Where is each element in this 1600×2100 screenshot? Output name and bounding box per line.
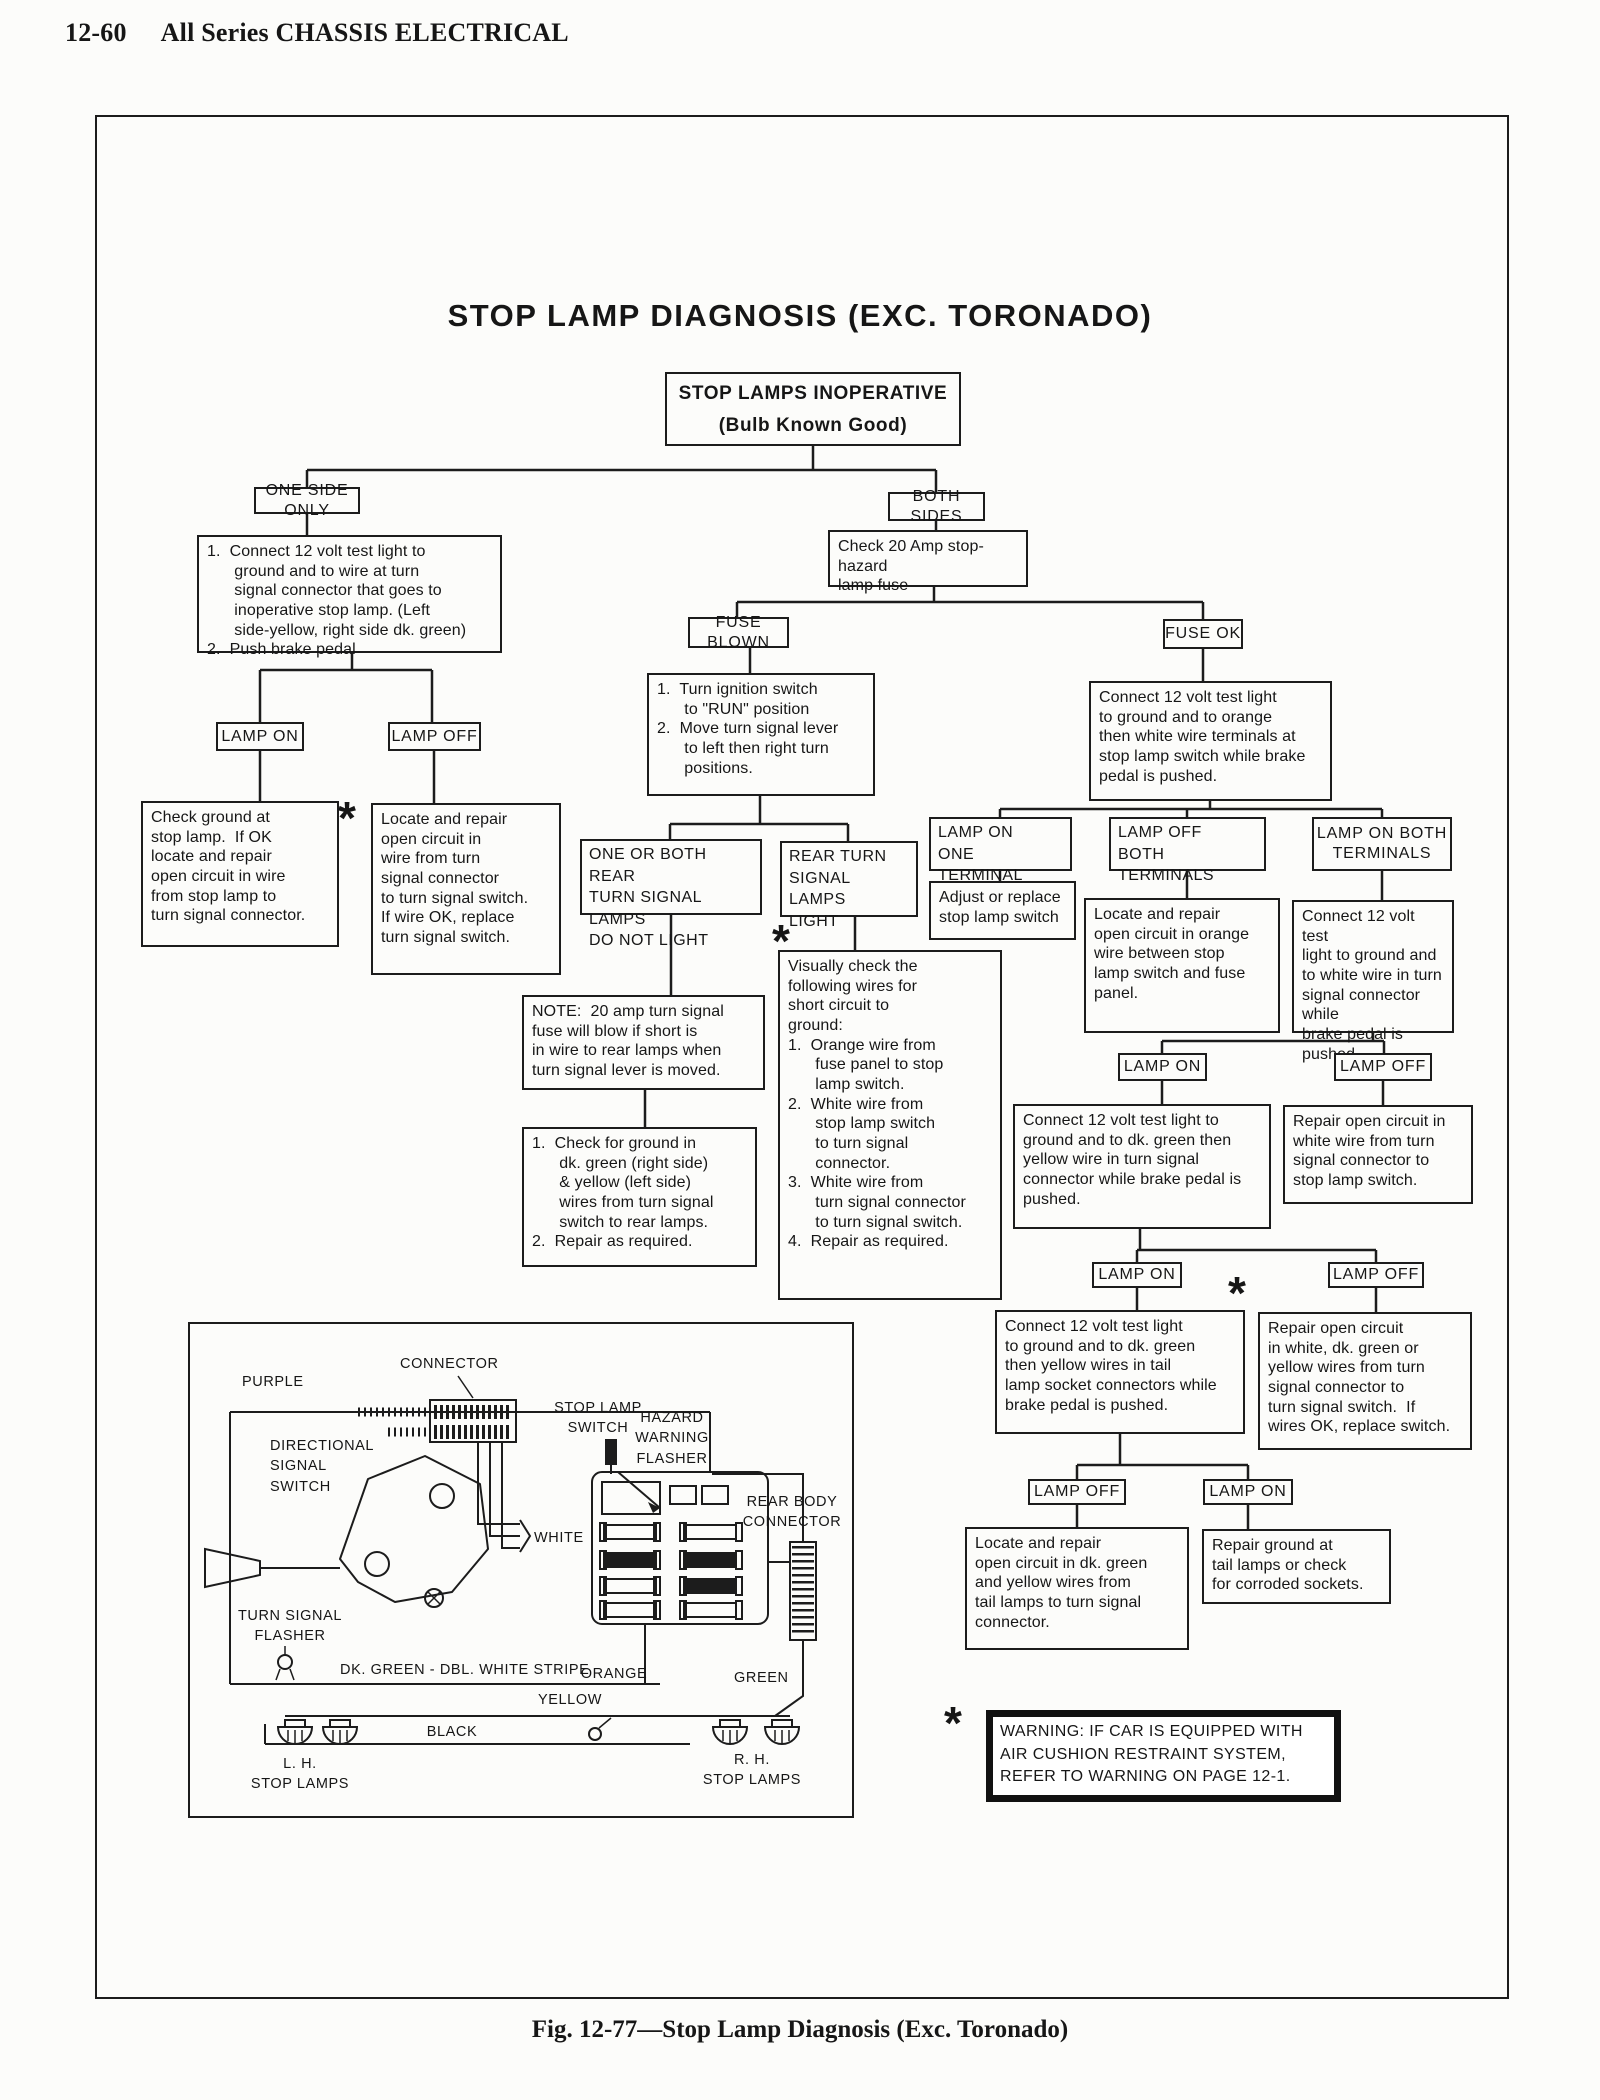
label-stop-lamp-switch: STOP LAMP SWITCH — [554, 1398, 642, 1439]
figure-caption: Fig. 12-77—Stop Lamp Diagnosis (Exc. Tor… — [0, 2016, 1600, 2044]
footnote-asterisk-warning: * — [944, 1700, 962, 1746]
node-visually-check: Visually check the following wires for s… — [778, 950, 1002, 1300]
node-one-side-steps: 1. Connect 12 volt test light to ground … — [197, 535, 502, 653]
node-lamp-on-r1: LAMP ON — [1118, 1053, 1207, 1081]
footnote-asterisk-3: * — [1228, 1270, 1246, 1316]
footnote-asterisk-2: * — [772, 918, 790, 964]
label-rear-body-connector: REAR BODY CONNECTOR — [743, 1492, 842, 1533]
label-connector: CONNECTOR — [400, 1354, 499, 1374]
node-one-or-both-rear: ONE OR BOTH REAR TURN SIGNAL LAMPS DO NO… — [580, 839, 762, 915]
node-lamp-off-bottom: LAMP OFF — [1028, 1479, 1126, 1505]
label-white: WHITE — [534, 1528, 584, 1548]
section-title: All Series CHASSIS ELECTRICAL — [161, 18, 569, 47]
node-lamp-off-r1: LAMP OFF — [1334, 1053, 1432, 1081]
page-number: 12-60 — [65, 18, 127, 47]
node-connect-white-turn: Connect 12 volt test light to ground and… — [1292, 900, 1454, 1033]
node-adjust-replace: Adjust or replace stop lamp switch — [929, 881, 1076, 940]
node-repair-white: Repair open circuit in white wire from t… — [1283, 1105, 1473, 1204]
flowchart-title: STOP LAMP DIAGNOSIS (EXC. TORONADO) — [95, 298, 1505, 334]
label-yellow: YELLOW — [538, 1690, 602, 1710]
node-connect-orange-white: Connect 12 volt test light to ground and… — [1089, 681, 1332, 801]
node-fuse-blown: FUSE BLOWN — [688, 617, 789, 648]
label-turn-signal-flasher: TURN SIGNAL FLASHER — [238, 1606, 342, 1647]
node-locate-tail: Locate and repair open circuit in dk. gr… — [965, 1527, 1189, 1650]
node-lamp-on-one-terminal: LAMP ON ONE TERMINAL — [929, 817, 1072, 871]
label-dk-green-stripe: DK. GREEN - DBL. WHITE STRIPE — [340, 1660, 589, 1680]
node-connect-tail: Connect 12 volt test light to ground and… — [995, 1310, 1245, 1434]
node-check-fuse: Check 20 Amp stop-hazard lamp fuse — [828, 530, 1028, 587]
node-check-ground: Check ground at stop lamp. If OK locate … — [141, 801, 339, 947]
node-lamp-off-r2: LAMP OFF — [1328, 1262, 1424, 1288]
manual-page: 12-60All Series CHASSIS ELECTRICAL STOP … — [0, 0, 1600, 2100]
node-locate-open-left: Locate and repair open circuit in wire f… — [371, 803, 561, 975]
label-rh-stop-lamps: R. H. STOP LAMPS — [703, 1750, 801, 1791]
footnote-asterisk-1: * — [338, 795, 356, 841]
label-directional-signal-switch: DIRECTIONAL SIGNAL SWITCH — [270, 1436, 374, 1497]
node-connect-dk-green: Connect 12 volt test light to ground and… — [1013, 1104, 1271, 1229]
node-lamp-off-both-terminals: LAMP OFF BOTH TERMINALS — [1109, 817, 1266, 871]
node-lamp-on-r2: LAMP ON — [1092, 1262, 1182, 1288]
label-purple: PURPLE — [242, 1372, 304, 1392]
wiring-diagram: PURPLE CONNECTOR STOP LAMP SWITCH HAZARD… — [188, 1322, 854, 1818]
page-header: 12-60All Series CHASSIS ELECTRICAL — [65, 18, 569, 48]
node-fuse-ok: FUSE OK — [1163, 619, 1243, 649]
wiring-diagram-art — [190, 1324, 852, 1816]
node-stop-lamps-inoperative: STOP LAMPS INOPERATIVE (Bulb Known Good) — [665, 372, 961, 446]
label-orange: ORANGE — [581, 1664, 647, 1684]
node-lamp-on-bottom: LAMP ON — [1203, 1479, 1293, 1505]
node-note-20amp: NOTE: 20 amp turn signal fuse will blow … — [522, 995, 765, 1090]
node-ignition-steps: 1. Turn ignition switch to "RUN" positio… — [647, 673, 875, 796]
warning-text: WARNING: IF CAR IS EQUIPPED WITH AIR CUS… — [993, 1717, 1334, 1793]
node-one-side-only: ONE SIDE ONLY — [254, 487, 360, 514]
node-both-sides: BOTH SIDES — [888, 492, 985, 521]
node-check-for-ground: 1. Check for ground in dk. green (right … — [522, 1127, 757, 1267]
node-rear-turn-light: REAR TURN SIGNAL LAMPS LIGHT — [780, 841, 918, 917]
warning-box: WARNING: IF CAR IS EQUIPPED WITH AIR CUS… — [986, 1710, 1341, 1802]
label-lh-stop-lamps: L. H. STOP LAMPS — [251, 1754, 349, 1795]
label-green: GREEN — [734, 1668, 789, 1688]
label-hazard-warning-flasher: HAZARD WARNING FLASHER — [635, 1408, 709, 1469]
label-black: BLACK — [427, 1722, 478, 1742]
node-repair-open-star: Repair open circuit in white, dk. green … — [1258, 1312, 1472, 1450]
node-lamp-on-both-terminals: LAMP ON BOTH TERMINALS — [1312, 817, 1452, 871]
node-locate-orange: Locate and repair open circuit in orange… — [1084, 898, 1280, 1033]
node-lamp-off-left: LAMP OFF — [388, 722, 481, 751]
node-lamp-on-left: LAMP ON — [216, 722, 304, 751]
node-repair-ground: Repair ground at tail lamps or check for… — [1202, 1529, 1391, 1604]
